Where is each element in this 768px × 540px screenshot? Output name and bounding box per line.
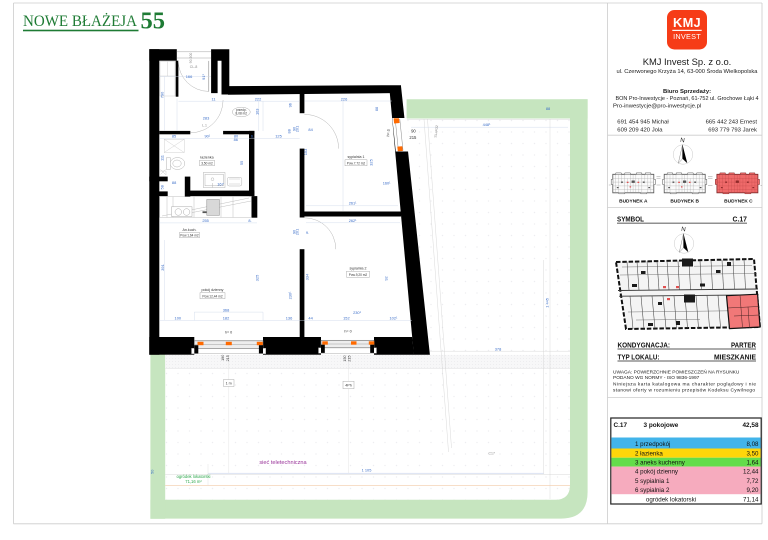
svg-text:102¹: 102¹ — [390, 316, 398, 321]
svg-text:1 m: 1 m — [226, 382, 232, 386]
svg-text:SYMBOL: SYMBOL — [617, 214, 644, 223]
svg-text:ogródek lokatorski: ogródek lokatorski — [646, 497, 696, 504]
svg-text:9,20: 9,20 — [746, 487, 759, 494]
svg-text:100: 100 — [175, 316, 182, 321]
svg-text:283: 283 — [203, 116, 210, 121]
svg-text:90 200: 90 200 — [189, 53, 193, 64]
svg-text:201: 201 — [295, 229, 300, 236]
svg-text:215: 215 — [348, 355, 352, 361]
svg-text:h= 0: h= 0 — [225, 331, 232, 335]
svg-text:85: 85 — [172, 134, 176, 139]
svg-text:8,08 m2: 8,08 m2 — [236, 112, 248, 116]
svg-text:Pow.12,44 m2: Pow.12,44 m2 — [202, 294, 222, 298]
svg-text:Biuro Sprzedaży:: Biuro Sprzedaży: — [663, 89, 711, 95]
svg-text:PARTER: PARTER — [731, 340, 757, 349]
svg-text:222: 222 — [255, 97, 262, 102]
svg-text:182: 182 — [223, 316, 230, 321]
svg-text:88: 88 — [172, 180, 176, 185]
svg-text:255: 255 — [202, 218, 209, 223]
svg-text:691 454 945 Michał: 691 454 945 Michał — [617, 120, 669, 126]
svg-text:12,44: 12,44 — [743, 469, 759, 476]
svg-text:790: 790 — [160, 91, 165, 98]
svg-text:NOWE BŁAŻEJA: NOWE BŁAŻEJA — [23, 13, 138, 30]
svg-text:201: 201 — [295, 126, 300, 133]
svg-text:125: 125 — [275, 134, 282, 139]
svg-text:KONDYGNACJA:: KONDYGNACJA: — [618, 340, 671, 349]
svg-text:150: 150 — [343, 355, 347, 361]
svg-text:L.1: L.1 — [202, 124, 207, 128]
svg-text:An.kuch.: An.kuch. — [183, 228, 197, 232]
svg-text:CL-8: CL-8 — [190, 65, 198, 69]
svg-text:sypialnia 1: sypialnia 1 — [348, 155, 365, 159]
svg-text:ul. Czerwonego Krzyża 14, 63-0: ul. Czerwonego Krzyża 14, 63-000 Środa W… — [617, 67, 759, 75]
svg-text:448¹: 448¹ — [483, 122, 491, 127]
svg-text:1 przedpokój: 1 przedpokój — [635, 441, 670, 448]
svg-text:261¹: 261¹ — [349, 201, 357, 206]
svg-text:BUDYNEK A: BUDYNEK A — [619, 199, 648, 205]
svg-text:96: 96 — [287, 103, 292, 107]
svg-text:sypialnia 2: sypialnia 2 — [350, 267, 367, 271]
svg-text:6.: 6. — [251, 134, 254, 139]
svg-text:sieć teletechniczna: sieć teletechniczna — [259, 460, 307, 466]
svg-text:334: 334 — [305, 273, 310, 280]
svg-text:88: 88 — [546, 106, 550, 111]
svg-text:55: 55 — [239, 161, 244, 165]
svg-text:91¹: 91¹ — [201, 73, 206, 79]
svg-text:stanowi oferty w rozumieniu pr: stanowi oferty w rozumieniu przepisów Ko… — [613, 387, 755, 393]
svg-text:MIESZKANIE: MIESZKANIE — [714, 352, 756, 361]
svg-text:152: 152 — [343, 316, 350, 321]
svg-text:378: 378 — [495, 346, 502, 351]
svg-text:55: 55 — [141, 8, 166, 35]
svg-text:167: 167 — [217, 181, 224, 186]
svg-text:215: 215 — [226, 355, 230, 361]
svg-text:C17: C17 — [489, 451, 495, 455]
svg-text:KMJ: KMJ — [673, 15, 701, 30]
svg-text:11: 11 — [211, 97, 215, 102]
svg-text:1 105: 1 105 — [362, 468, 372, 473]
svg-text:C.17: C.17 — [733, 214, 748, 223]
svg-text:pokój dzienny: pokój dzienny — [202, 288, 224, 292]
svg-text:8,08: 8,08 — [746, 441, 759, 448]
svg-text:92: 92 — [384, 276, 389, 280]
svg-text:230¹: 230¹ — [353, 310, 361, 315]
svg-text:103: 103 — [303, 149, 308, 156]
svg-text:4 pokój dzienny: 4 pokój dzienny — [635, 469, 679, 476]
svg-text:4Ph: 4Ph — [345, 384, 352, 388]
svg-text:262¹: 262¹ — [349, 218, 357, 223]
svg-text:90: 90 — [411, 129, 416, 134]
svg-text:111: 111 — [159, 155, 164, 161]
svg-text:1 445: 1 445 — [544, 298, 549, 308]
svg-text:368: 368 — [223, 307, 230, 312]
svg-text:215: 215 — [409, 135, 417, 140]
svg-text:190: 190 — [221, 355, 225, 361]
svg-text:693 779 793 Jarek: 693 779 793 Jarek — [708, 127, 757, 133]
svg-text:71,16 m²: 71,16 m² — [185, 479, 202, 484]
svg-text:325: 325 — [369, 159, 374, 166]
svg-text:UWAGA: POWIERZCHNIE POMIESZCZE: UWAGA: POWIERZCHNIE POMIESZCZEŃ NA RYSUN… — [613, 368, 740, 375]
svg-text:1,64: 1,64 — [746, 459, 759, 466]
svg-text:325: 325 — [255, 275, 260, 282]
svg-text:136: 136 — [286, 316, 293, 321]
svg-text:6 sypialnia 2: 6 sypialnia 2 — [635, 487, 670, 494]
svg-text:h= 0: h= 0 — [344, 330, 351, 334]
svg-text:3,50 m2: 3,50 m2 — [201, 161, 213, 165]
svg-text:90¹: 90¹ — [204, 134, 210, 139]
svg-text:103: 103 — [254, 109, 259, 116]
svg-text:BUDYNEK C: BUDYNEK C — [724, 199, 753, 205]
svg-text:Pro-inwestycje@pro-inwestycje.: Pro-inwestycje@pro-inwestycje.pl — [613, 104, 701, 110]
svg-text:86: 86 — [234, 137, 238, 142]
svg-text:TYP LOKALU:: TYP LOKALU: — [618, 352, 660, 361]
svg-text:3 aneks kuchenny: 3 aneks kuchenny — [635, 459, 686, 466]
svg-text:Pow.7,72 m2: Pow.7,72 m2 — [347, 161, 366, 165]
svg-text:Niniejsza karta katalogowa ma: Niniejsza karta katalogowa ma charakter … — [613, 382, 756, 388]
svg-text:Pow.9,20 m2: Pow.9,20 m2 — [349, 273, 368, 277]
svg-text:226: 226 — [341, 96, 348, 101]
svg-text:8.: 8. — [248, 218, 251, 223]
svg-text:BON Pro-Inwestycje - Poznań, 6: BON Pro-Inwestycje - Poznań, 61-752 ul. … — [616, 96, 760, 102]
svg-text:3 pokojowe: 3 pokojowe — [644, 422, 679, 429]
svg-text:88: 88 — [374, 107, 379, 111]
svg-text:2 łazienka: 2 łazienka — [635, 450, 663, 457]
svg-text:C.17: C.17 — [614, 422, 628, 429]
svg-text:42,58: 42,58 — [743, 422, 759, 429]
svg-text:KMJ Invest Sp. z o.o.: KMJ Invest Sp. z o.o. — [643, 56, 732, 67]
svg-text:71,14: 71,14 — [743, 497, 759, 504]
svg-text:INVEST: INVEST — [673, 32, 701, 41]
svg-text:h=.0: h=.0 — [386, 129, 391, 137]
svg-text:BUDYNEK B: BUDYNEK B — [670, 199, 699, 205]
svg-text:9.: 9. — [306, 230, 309, 235]
svg-text:58: 58 — [159, 185, 164, 189]
svg-text:7,72: 7,72 — [746, 478, 759, 485]
svg-text:3,50: 3,50 — [746, 450, 759, 457]
svg-text:łazienka: łazienka — [200, 156, 213, 160]
svg-text:PODANO WG NORMY - ISO 9836-199: PODANO WG NORMY - ISO 9836-1997 — [613, 375, 700, 381]
svg-text:160¹: 160¹ — [383, 180, 391, 185]
svg-text:665 442 243 Ernest: 665 442 243 Ernest — [706, 120, 758, 126]
svg-text:391: 391 — [160, 264, 165, 271]
svg-text:230¹: 230¹ — [288, 291, 293, 299]
svg-text:Pow.1,64 m2: Pow.1,64 m2 — [180, 234, 199, 238]
svg-text:166: 166 — [186, 74, 193, 79]
svg-text:5 sypialnia 1: 5 sypialnia 1 — [635, 478, 670, 485]
svg-text:609 209 420 Jola: 609 209 420 Jola — [617, 127, 663, 133]
